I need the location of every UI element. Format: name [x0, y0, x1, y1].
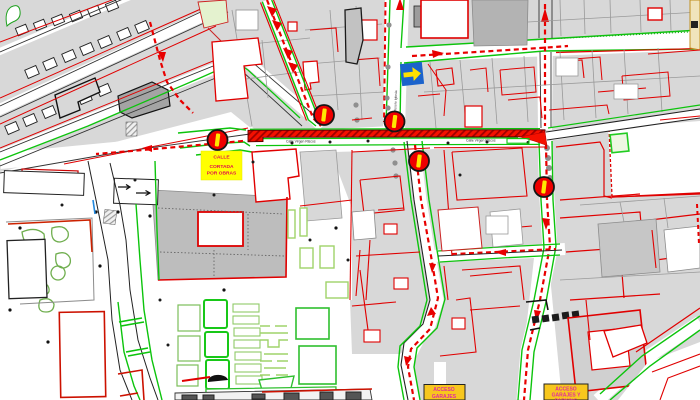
- svg-text:CALLE: CALLE: [213, 155, 230, 161]
- svg-text:POR OBRAS: POR OBRAS: [207, 171, 237, 177]
- svg-text:GARAJES: GARAJES: [432, 394, 457, 400]
- svg-text:Calle Virgen Riscos: Calle Virgen Riscos: [286, 140, 316, 144]
- svg-text:CORTADA: CORTADA: [209, 164, 234, 170]
- svg-text:Calle Virgen Riscos: Calle Virgen Riscos: [466, 139, 496, 143]
- svg-text:ACCESO: ACCESO: [433, 387, 455, 393]
